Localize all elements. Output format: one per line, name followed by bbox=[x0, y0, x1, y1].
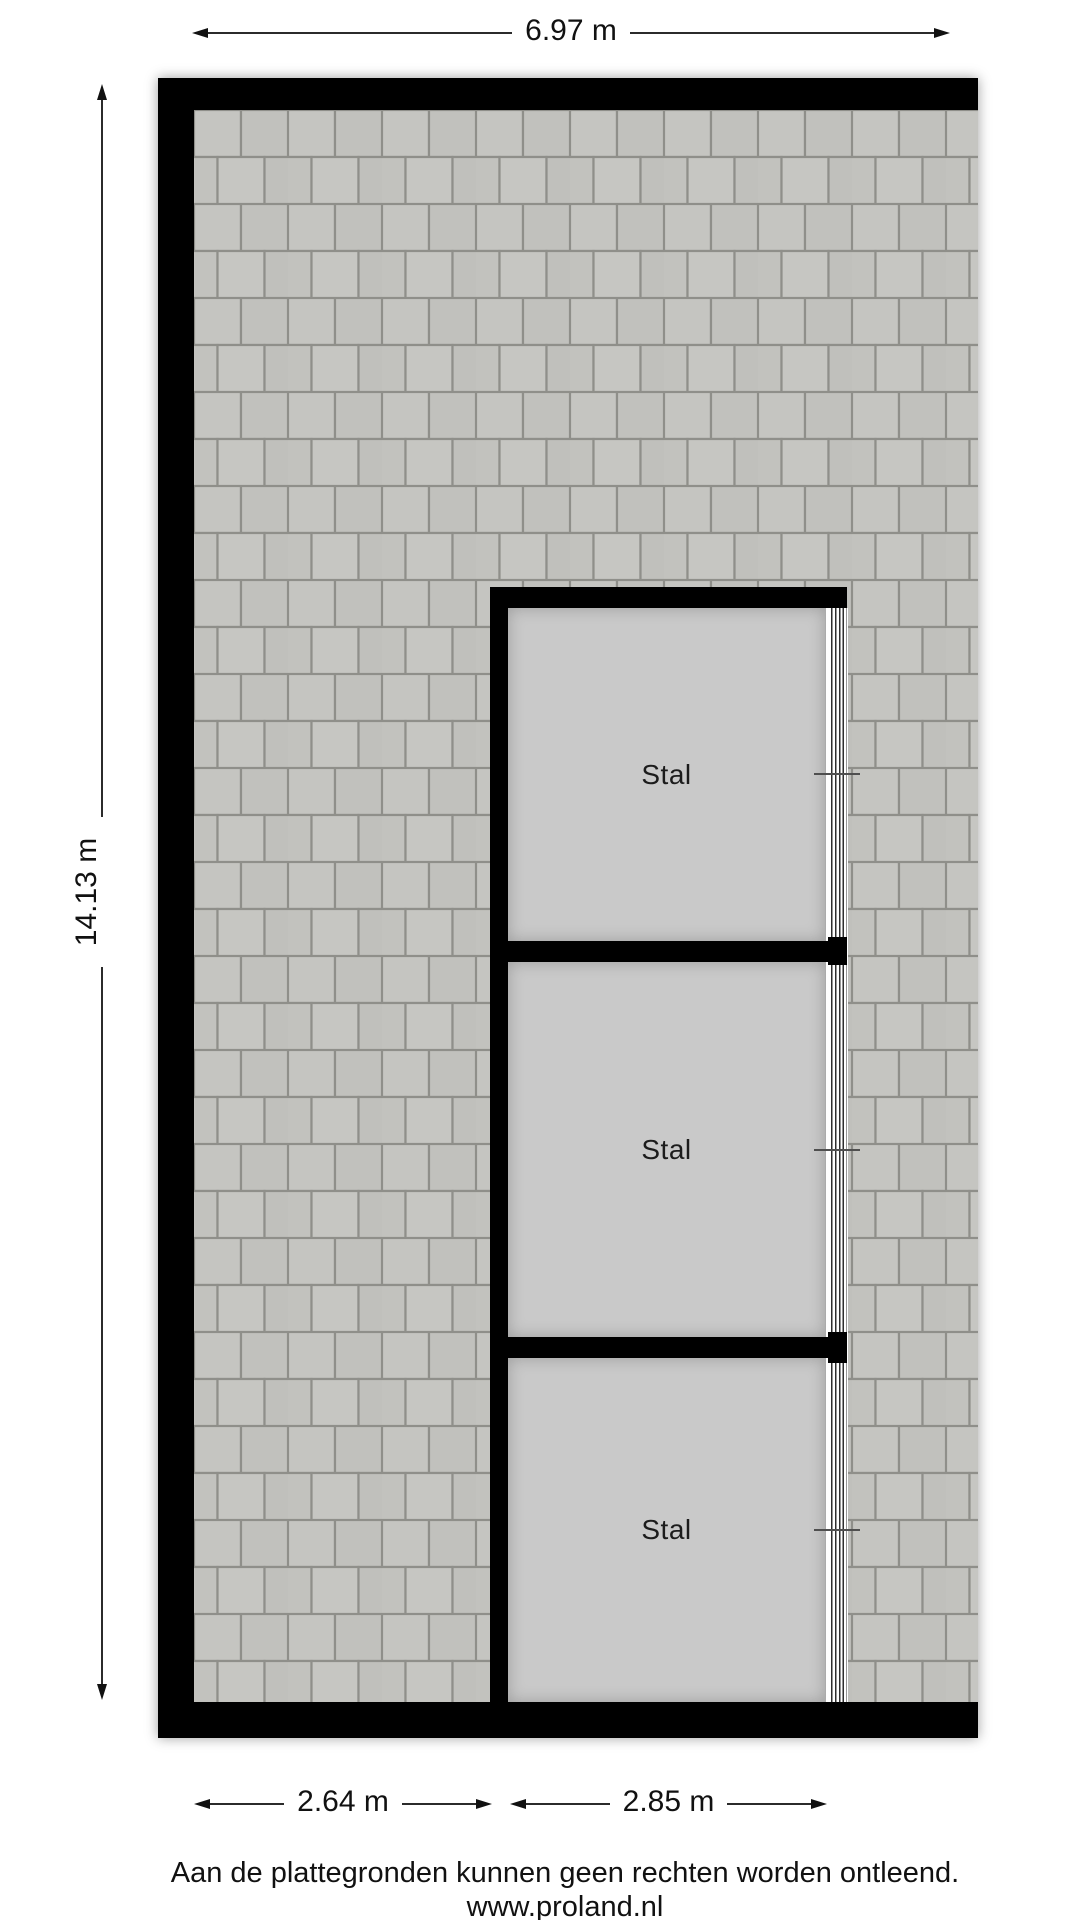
dimension-bottom-right-width: 2.85 m bbox=[510, 1796, 827, 1812]
stal-room-2: Stal bbox=[508, 962, 825, 1337]
dimension-line bbox=[402, 1803, 476, 1805]
arrow-right-icon bbox=[934, 28, 950, 38]
window-center-tick-icon bbox=[814, 1149, 860, 1151]
arrow-right-icon bbox=[476, 1799, 492, 1809]
dimension-label: 2.85 m bbox=[610, 1785, 728, 1819]
stal-block-wall-top bbox=[490, 587, 847, 608]
room-label: Stal bbox=[641, 1514, 691, 1546]
dimension-label: 6.97 m bbox=[512, 14, 630, 48]
dimension-line bbox=[630, 32, 934, 34]
outer-wall-top bbox=[158, 78, 978, 110]
dimension-label: 2.64 m bbox=[284, 1785, 402, 1819]
stal-room-3: Stal bbox=[508, 1358, 825, 1702]
stal-divider-wall-2-endcap bbox=[828, 1332, 847, 1363]
dimension-top-width: 6.97 m bbox=[192, 25, 950, 41]
footer-website: www.proland.nl bbox=[25, 1890, 1080, 1920]
outer-wall-bottom bbox=[158, 1702, 978, 1738]
arrow-left-icon bbox=[194, 1799, 210, 1809]
footer: Aan de plattegronden kunnen geen rechten… bbox=[25, 1856, 1080, 1920]
stal-room-1: Stal bbox=[508, 608, 825, 941]
dimension-label-box: 14.13 m bbox=[101, 817, 103, 967]
window-center-tick-icon bbox=[814, 773, 860, 775]
stal-divider-wall-1 bbox=[490, 941, 828, 962]
stal-divider-wall-1-endcap bbox=[828, 937, 847, 965]
arrow-left-icon bbox=[510, 1799, 526, 1809]
dimension-line bbox=[101, 967, 103, 1684]
arrow-right-icon bbox=[811, 1799, 827, 1809]
stal-block-wall-left bbox=[490, 587, 508, 1702]
arrow-left-icon bbox=[192, 28, 208, 38]
dimension-bottom-left-width: 2.64 m bbox=[194, 1796, 492, 1812]
dimension-line bbox=[101, 100, 103, 817]
arrow-down-icon bbox=[97, 1684, 107, 1700]
dimension-line bbox=[526, 1803, 610, 1805]
dimension-label: 14.13 m bbox=[70, 838, 104, 946]
dimension-left-height: 14.13 m bbox=[97, 84, 107, 1700]
stal-divider-wall-2 bbox=[490, 1337, 828, 1358]
window-center-tick-icon bbox=[814, 1529, 860, 1531]
dimension-line bbox=[210, 1803, 284, 1805]
arrow-up-icon bbox=[97, 84, 107, 100]
floor-plan-page: Stal Stal Stal 6.97 m 14.13 m 2.64 m 2.8… bbox=[0, 0, 1080, 1920]
dimension-line bbox=[727, 1803, 811, 1805]
room-label: Stal bbox=[641, 759, 691, 791]
footer-disclaimer: Aan de plattegronden kunnen geen rechten… bbox=[25, 1856, 1080, 1890]
outer-wall-left bbox=[158, 78, 194, 1738]
dimension-line bbox=[208, 32, 512, 34]
room-label: Stal bbox=[641, 1134, 691, 1166]
